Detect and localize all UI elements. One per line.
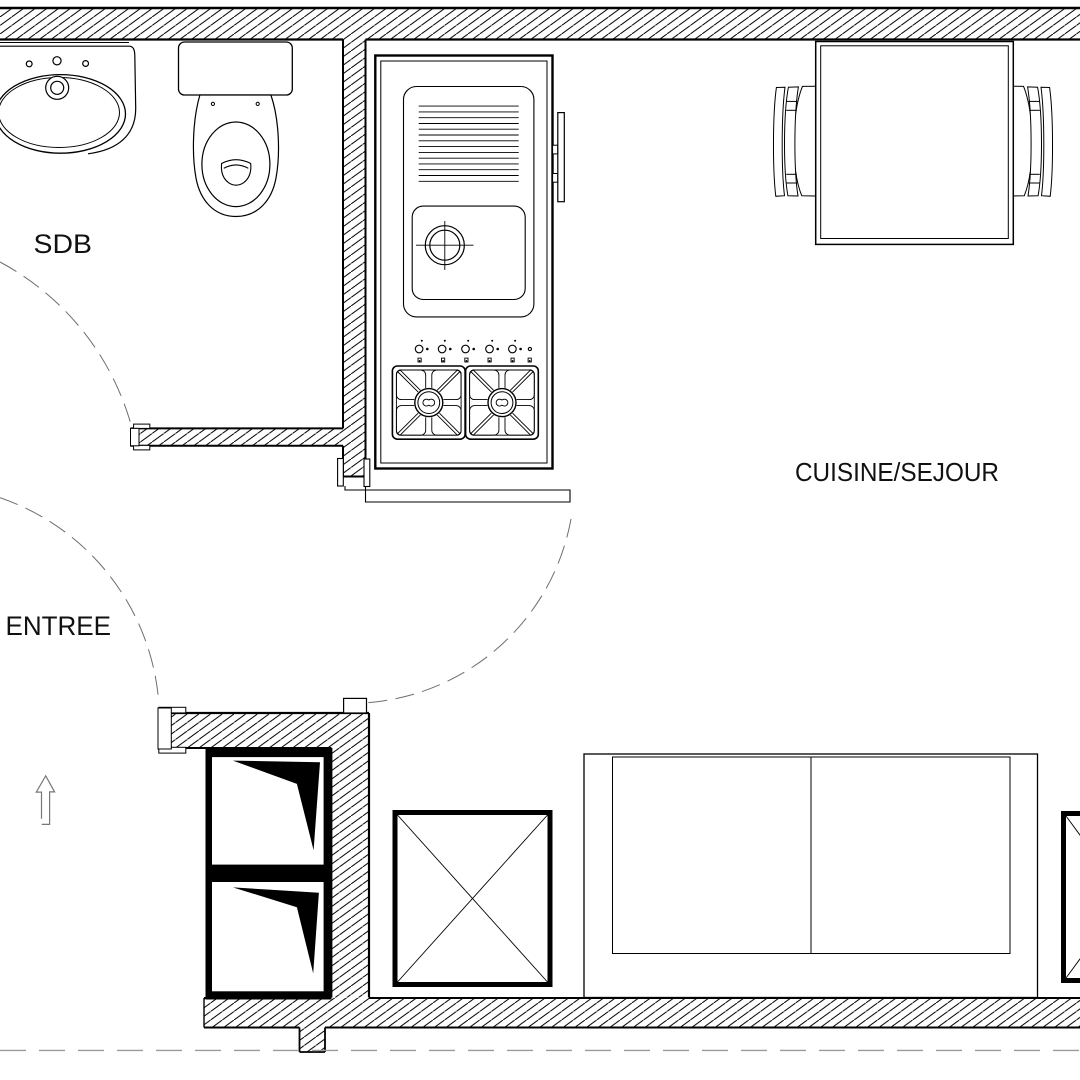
svg-text:ENTREE: ENTREE: [6, 611, 112, 641]
svg-text:CUISINE/SEJOUR: CUISINE/SEJOUR: [795, 457, 999, 487]
svg-text:SDB: SDB: [34, 229, 93, 259]
